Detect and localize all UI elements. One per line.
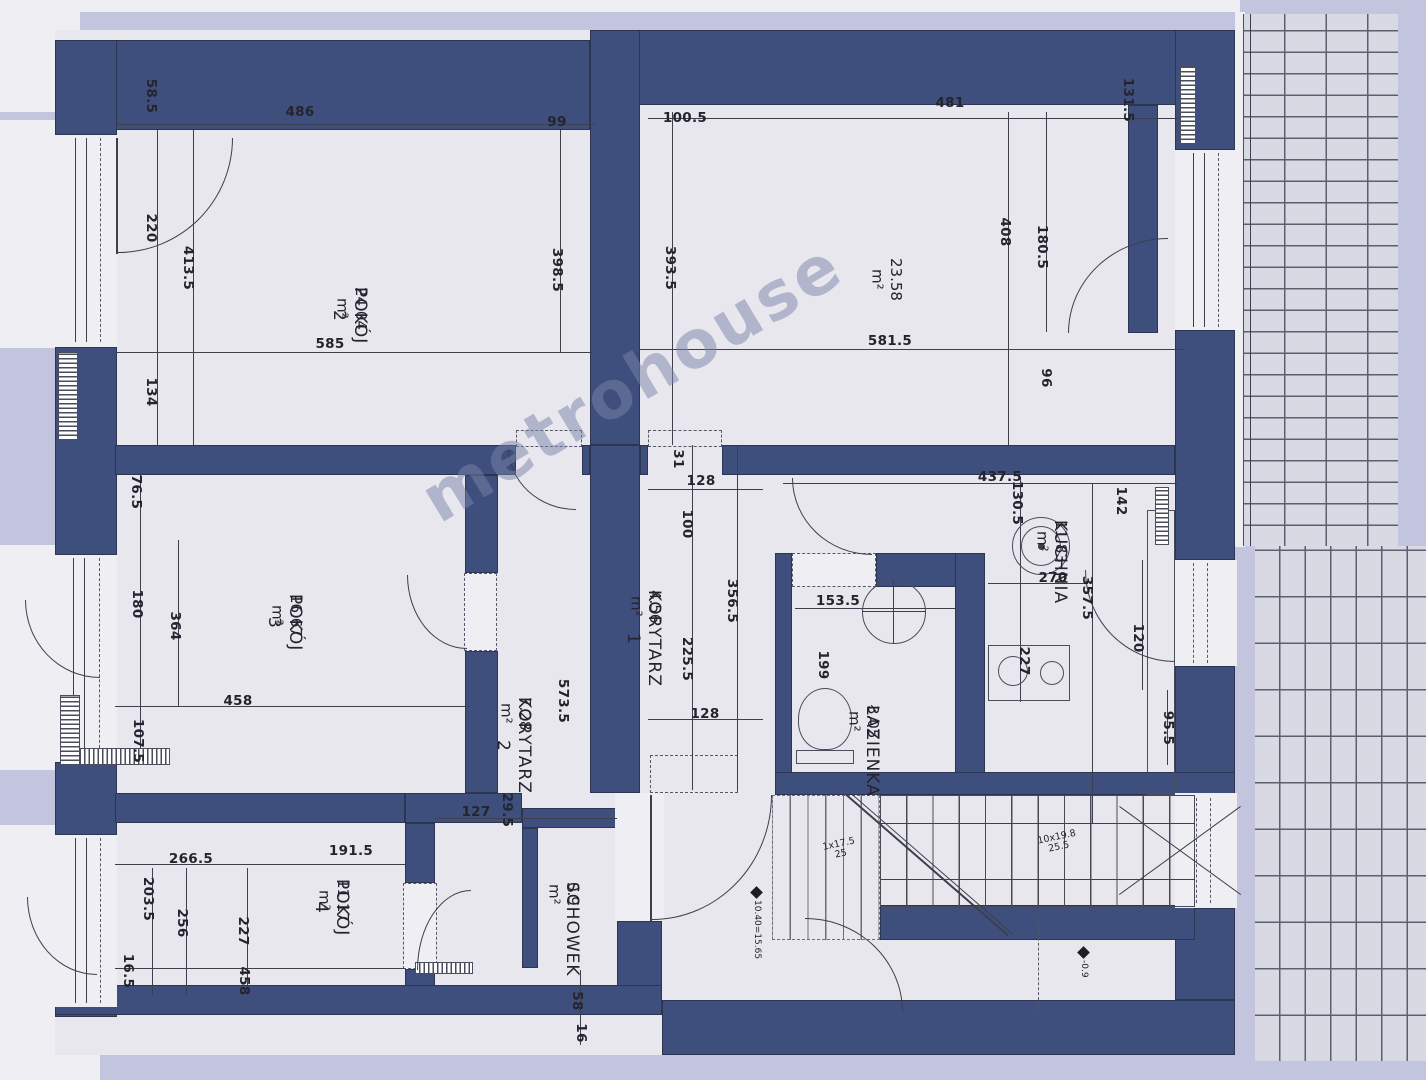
dimension-label: 76.5	[128, 475, 144, 510]
dashed-opening	[650, 755, 738, 793]
dashed-line	[100, 838, 101, 1003]
dimension-label: 131.5	[1120, 78, 1136, 122]
dimension-label: 398.5	[549, 248, 565, 292]
room-area: 4.56 m²	[627, 590, 665, 623]
wall	[722, 445, 1175, 475]
dimension-label: 227	[1016, 646, 1032, 675]
dimension-label: 481	[935, 95, 964, 111]
room-area: 11.83 m²	[1033, 520, 1071, 563]
wall	[662, 1000, 1235, 1055]
dimension-label: 128	[690, 706, 719, 722]
terrace-edge-line	[1250, 14, 1251, 546]
dimension-label: 180.5	[1034, 225, 1050, 269]
toilet-tank	[796, 750, 854, 764]
dimension-label: 458	[236, 966, 252, 995]
stairs-rail	[880, 823, 1195, 824]
wall	[522, 828, 538, 968]
dimension-label: 100	[679, 509, 695, 538]
paper-margin	[0, 0, 1240, 12]
dimension-line	[560, 130, 561, 352]
dimension-label: 96	[1038, 368, 1054, 387]
paper-margin	[0, 545, 56, 770]
sink-cross-line	[862, 611, 926, 612]
dimension-label: 585	[315, 336, 344, 352]
dimension-label: 100.5	[663, 110, 707, 126]
dimension-label: 413.5	[180, 246, 196, 290]
dimension-label: 58	[569, 991, 585, 1010]
terrace-paving-lower	[1255, 546, 1426, 1061]
window-frame-line	[75, 138, 76, 342]
dimension-label: 31	[670, 449, 686, 468]
dimension-label: 393.5	[662, 246, 678, 290]
dashed-opening	[464, 573, 497, 651]
dimension-label: 58.5	[143, 79, 159, 114]
dimension-label: 199	[815, 650, 831, 679]
dimension-label: 153.5	[816, 593, 860, 609]
dimension-line	[115, 124, 595, 125]
dashed-opening	[792, 553, 876, 587]
stove-burner	[1040, 661, 1064, 685]
floor-plan: metrohouse POKÓJ 224.04 m²POKÓJ 316.67 m…	[0, 0, 1426, 1080]
wall	[55, 762, 117, 835]
terrace-paving-upper	[1243, 14, 1398, 546]
wall	[55, 40, 117, 135]
dashed-opening	[648, 430, 722, 447]
stairs-lower-flight	[772, 795, 880, 940]
level-marker-text: 10.40=15.65	[752, 900, 762, 959]
wall	[775, 553, 792, 793]
dimension-label: 29.5	[499, 793, 515, 828]
dimension-label: 220	[143, 213, 159, 242]
radiator	[1180, 66, 1196, 144]
dimension-label: 134	[143, 377, 159, 406]
wall	[115, 793, 405, 823]
dimension-line	[648, 489, 763, 490]
wall	[590, 30, 1235, 105]
dimension-label: 16.5	[120, 954, 136, 989]
dimension-label: 270	[1038, 570, 1067, 586]
radiator	[1155, 487, 1169, 545]
dimension-label: 573.5	[555, 679, 571, 723]
dimension-label: 227	[235, 916, 251, 945]
window-frame-line	[1193, 153, 1194, 327]
room-area: 7.28 m²	[497, 697, 535, 730]
dimension-line	[115, 864, 405, 865]
dashed-line	[1196, 798, 1197, 903]
dimension-label: 364	[167, 611, 183, 640]
wall	[1175, 330, 1235, 560]
room-area: 24.04 m²	[333, 287, 371, 330]
dimension-line	[115, 706, 470, 707]
dimension-line	[1046, 112, 1047, 332]
dimension-label: 203.5	[140, 877, 156, 921]
room-area: 23.58 m²	[868, 258, 906, 301]
dimension-label: 99	[547, 114, 566, 130]
dimension-line	[1008, 112, 1009, 445]
radiator	[60, 695, 80, 765]
dimension-label: 581.5	[868, 333, 912, 349]
dimension-label: 458	[223, 693, 252, 709]
radiator	[80, 748, 170, 765]
dimension-label: 180	[129, 589, 145, 618]
window-frame-line	[1204, 153, 1205, 327]
radiator	[58, 352, 78, 440]
stairs-upper-flight	[880, 795, 1195, 907]
dashed-line	[1218, 153, 1219, 327]
dimension-label: 266.5	[169, 851, 213, 867]
dimension-label: 16	[573, 1023, 589, 1042]
window-frame-line	[86, 138, 87, 342]
dimension-label: 95.5	[1160, 711, 1176, 746]
dimension-label: 142	[1113, 486, 1129, 515]
stairs-rail	[880, 879, 1195, 880]
dimension-line	[648, 118, 1178, 119]
dimension-label: 486	[285, 104, 314, 120]
room-area: 16.67 m²	[268, 594, 306, 637]
dimension-label: 357.5	[1079, 576, 1095, 620]
dimension-label: 130.5	[1009, 481, 1025, 525]
dimension-line	[1092, 483, 1093, 823]
dimension-label: 225.5	[679, 637, 695, 681]
dashed-line	[1210, 798, 1211, 903]
wall	[955, 553, 985, 793]
wall	[405, 823, 435, 883]
dimension-line	[692, 445, 693, 790]
wall	[55, 40, 590, 130]
dashed-line	[100, 138, 101, 342]
dashed-line	[1207, 563, 1208, 663]
dimension-line	[115, 352, 593, 353]
dashed-line	[1038, 918, 1039, 1010]
dimension-label: 191.5	[329, 843, 373, 859]
dimension-label: 128	[686, 473, 715, 489]
level-marker-text: -0.9	[1079, 960, 1089, 978]
dimension-label: 408	[997, 217, 1013, 246]
dimension-label: 256	[174, 908, 190, 937]
dimension-label: 127	[461, 804, 490, 820]
room-area: 11.17 m²	[315, 879, 353, 922]
room-area: 3.05 m²	[845, 705, 883, 738]
room-area: 0.9 m²	[545, 882, 583, 906]
wall-opening	[1175, 560, 1237, 666]
dimension-label: 120	[1130, 623, 1146, 652]
dimension-line	[115, 968, 405, 969]
wall	[640, 445, 648, 475]
dashed-line	[1193, 563, 1194, 663]
wall-opening	[1175, 150, 1237, 330]
dimension-label: 107.5	[130, 719, 146, 763]
paper-margin	[0, 120, 58, 348]
dimension-label: 356.5	[724, 579, 740, 623]
